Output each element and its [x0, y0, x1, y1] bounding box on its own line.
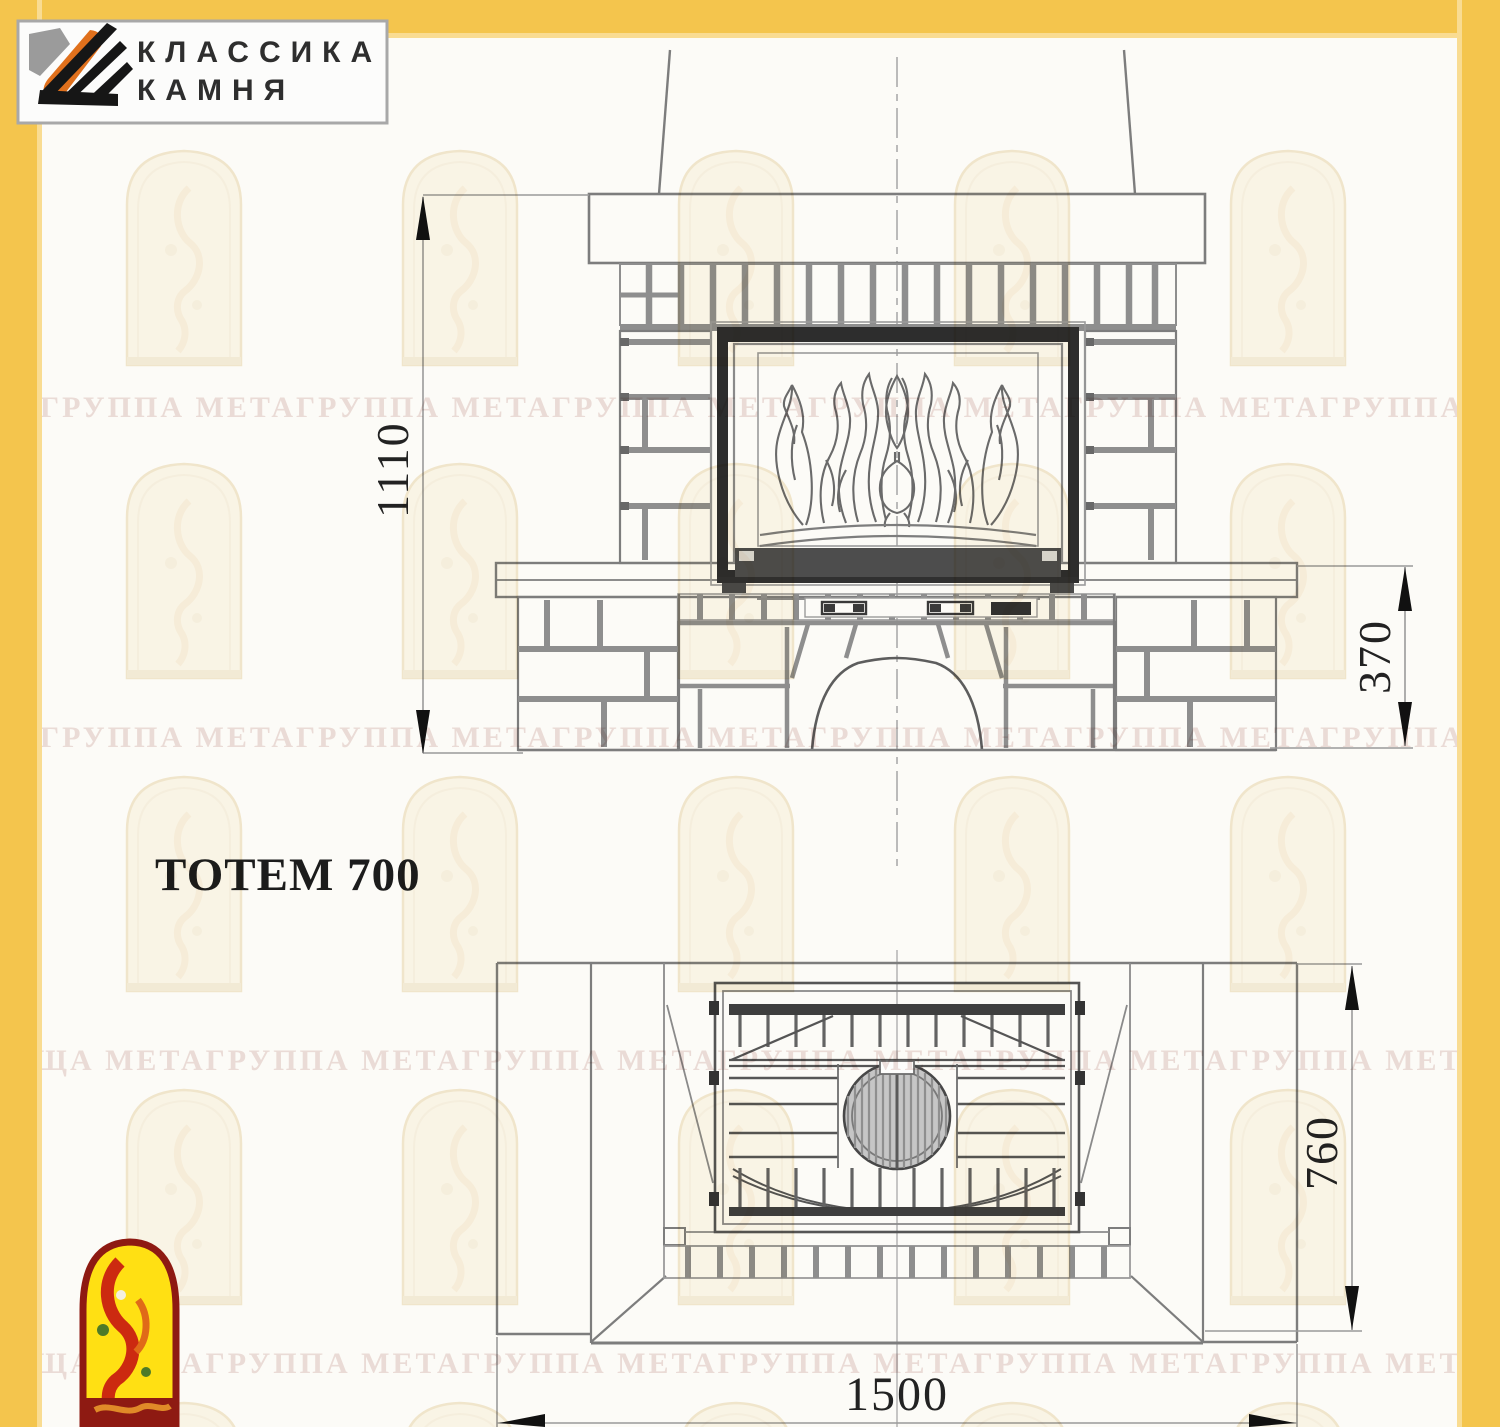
svg-text:ЩА МЕТАГРУППА МЕТАГРУППА МЕТАГ: ЩА МЕТАГРУППА МЕТАГРУППА МЕТАГРУППА МЕТА…	[34, 1044, 1486, 1077]
svg-text:ГРУППА МЕТАГРУППА МЕТАГРУППА М: ГРУППА МЕТАГРУППА МЕТАГРУППА МЕТАГРУППА …	[40, 721, 1500, 754]
svg-text:ЩА МЕТАГРУППА МЕТАГРУППА МЕТАГ: ЩА МЕТАГРУППА МЕТАГРУППА МЕТАГРУППА МЕТА…	[34, 1347, 1486, 1380]
svg-text:КЛАССИКА: КЛАССИКА	[137, 36, 382, 69]
svg-text:370: 370	[1349, 619, 1400, 694]
svg-text:КАМНЯ: КАМНЯ	[137, 74, 295, 107]
svg-text:ГРУППА МЕТАГРУППА МЕТАГРУППА М: ГРУППА МЕТАГРУППА МЕТАГРУППА МЕТАГРУППА …	[40, 391, 1500, 424]
